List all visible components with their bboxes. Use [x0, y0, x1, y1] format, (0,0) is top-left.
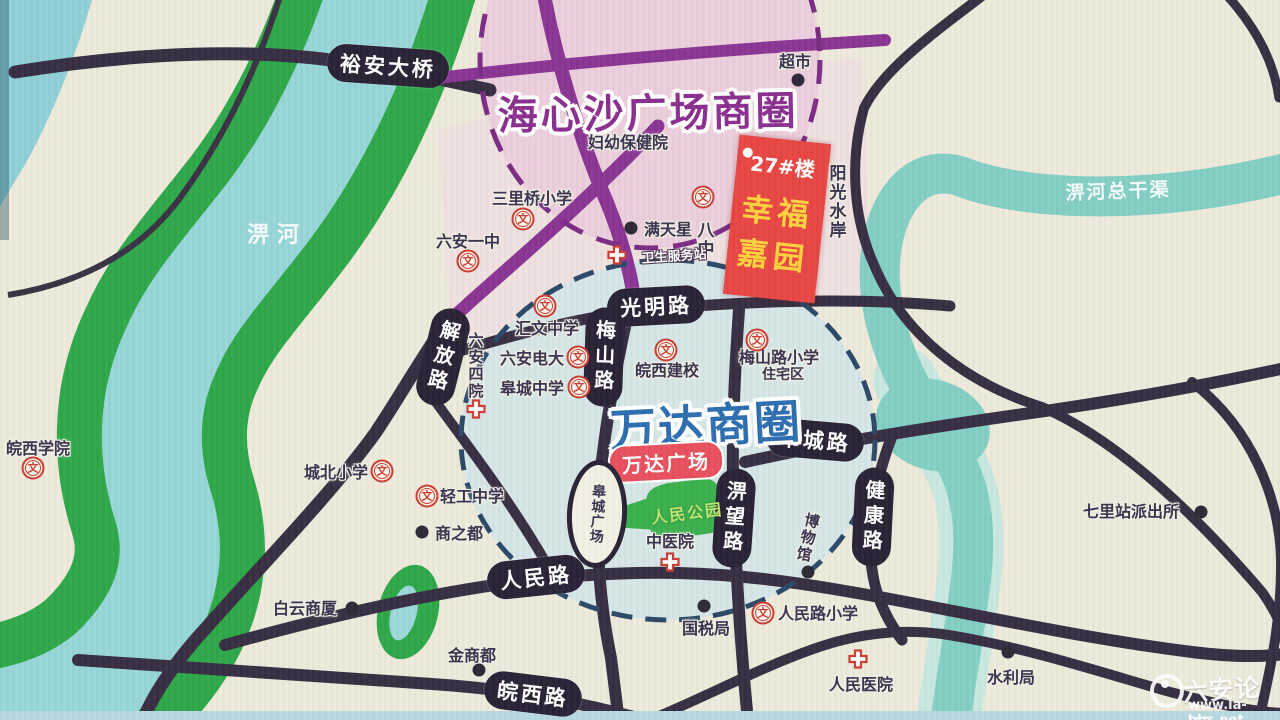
poi-label-gaocheng-middle: 皋城中学 [500, 375, 564, 399]
poi-label-luan-no4-hospital: 六安四院 [466, 332, 487, 400]
poi-label-renminlu-primary: 人民路小学 [778, 600, 858, 624]
school-icon: 文 [371, 460, 394, 483]
school-icon: 文 [692, 186, 715, 209]
poi-dot [802, 566, 815, 579]
poi-dot [1002, 646, 1015, 659]
property-building-no: 27#楼 [749, 147, 816, 183]
poi-label-supermarket: 超市 [779, 48, 811, 72]
watermark-logo-icon [1150, 674, 1184, 708]
poi-dot [473, 664, 486, 677]
poi-dot [625, 222, 638, 235]
photo-bottom-strip [0, 711, 1280, 720]
road-corner-arc [1222, 0, 1279, 98]
road-northeast-diagonal [855, 0, 1280, 642]
hospital-cross-icon [659, 551, 681, 573]
poi-dot [1195, 506, 1208, 519]
school-glyph: 文 [540, 301, 551, 312]
school-glyph: 文 [377, 466, 388, 477]
school-glyph: 文 [573, 352, 584, 363]
school-icon: 文 [22, 457, 45, 480]
poi-label-sunshine-waterfront: 阳光水岸 [824, 164, 849, 240]
poi-label-renmin-hospital: 人民医院 [829, 671, 893, 695]
school-icon: 文 [746, 329, 769, 352]
hospital-cross-icon [465, 398, 487, 420]
poi-label-baiyun-building: 白云商厦 [273, 595, 337, 619]
poi-label-huiwen-middle: 汇文中学 [515, 315, 579, 339]
map-screenshot: 淠河 淠河总干渠 裕安大桥 光明路 皋城路 人民路 皖西路 解放路 梅山路 淠望… [0, 0, 1280, 720]
property-banner: 27#楼 幸福 嘉园 [723, 135, 831, 304]
river-label-pihe: 淠河 [247, 217, 307, 249]
hospital-cross-icon [847, 648, 869, 670]
watermark-site-url: www.la-bbs.net [1188, 698, 1278, 720]
poi-label-sanliqiao-primary: 三里桥小学 [492, 185, 572, 209]
school-icon: 文 [655, 339, 678, 362]
river-label-canal: 淠河总干渠 [1065, 175, 1171, 206]
school-icon: 文 [568, 376, 591, 399]
poi-label-shangzhidu: 商之都 [435, 520, 483, 544]
school-icon: 文 [534, 295, 557, 318]
poi-label-qilizhan-police: 七里站派出所 [1083, 498, 1179, 522]
school-glyph: 文 [661, 345, 672, 356]
poi-label-water-bureau: 水利局 [987, 664, 1035, 688]
poi-dot [346, 602, 359, 615]
school-glyph: 文 [758, 608, 769, 619]
poi-label-luan-tv-university: 六安电大 [500, 345, 564, 369]
poi-label-chengbei-primary: 城北小学 [304, 459, 368, 483]
poi-label-wanxi-college: 皖西学院 [6, 435, 70, 459]
poi-label-mantianxing: 满天星 [644, 216, 692, 240]
poi-dot [698, 600, 711, 613]
road-label-jiankang: 健康路 [851, 467, 895, 568]
school-glyph: 文 [422, 491, 433, 502]
school-glyph: 文 [698, 192, 709, 203]
property-name-line2: 嘉园 [735, 227, 811, 279]
school-glyph: 文 [463, 256, 474, 267]
school-icon: 文 [416, 485, 439, 508]
poi-label-wanda-plaza: 万达广场 [607, 439, 725, 484]
school-icon: 文 [567, 346, 590, 369]
poi-label-maternal-child-hospital: 妇幼保健院 [588, 129, 668, 153]
hospital-cross-icon [606, 244, 628, 266]
school-glyph: 文 [574, 382, 585, 393]
poi-label-jinshangdu: 金商都 [448, 642, 496, 666]
school-icon: 文 [752, 602, 775, 625]
poi-dot [792, 74, 805, 87]
poi-label-tax-bureau: 国税局 [682, 615, 730, 639]
school-glyph: 文 [752, 335, 763, 346]
school-glyph: 文 [518, 214, 529, 225]
watermark: 六安论坛 www.la-bbs.net [1148, 670, 1278, 716]
poi-label-qinggong-middle: 轻工中学 [440, 483, 504, 507]
poi-label-tcm-hospital: 中医院 [646, 528, 694, 552]
poi-dot [416, 526, 429, 539]
school-glyph: 文 [28, 463, 39, 474]
school-icon: 文 [457, 250, 480, 273]
school-icon: 文 [512, 208, 535, 231]
poi-label-residential-area: 住宅区 [762, 364, 804, 384]
poi-label-luan-no1-middle: 六安一中 [436, 228, 500, 252]
